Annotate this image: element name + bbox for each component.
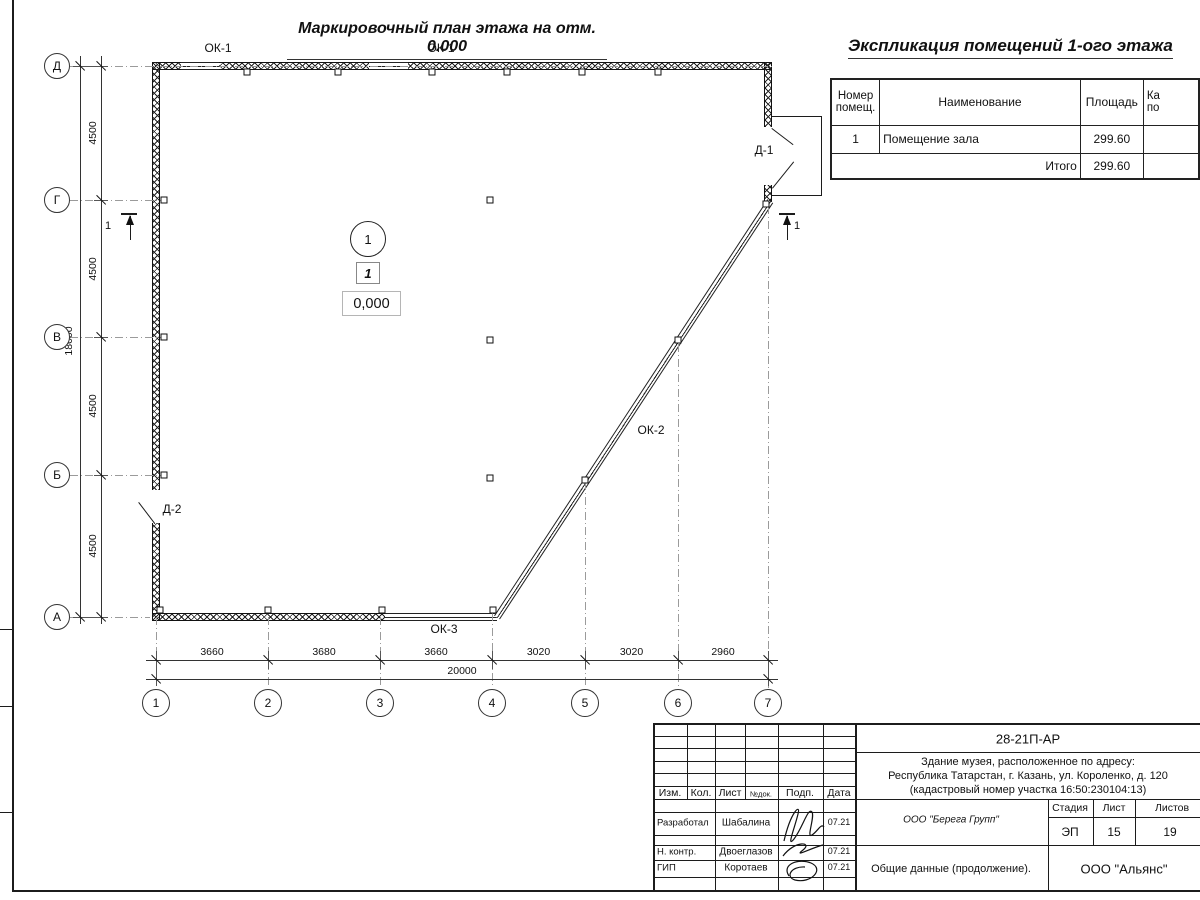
role-label: ГИП — [657, 863, 676, 874]
titleblock-line — [1048, 817, 1200, 818]
titleblock-line — [1093, 799, 1094, 845]
titleblock-line — [653, 799, 1200, 800]
titleblock-line — [1135, 799, 1136, 845]
sign-date: 07.21 — [828, 862, 851, 872]
titleblock-line — [653, 748, 855, 749]
titleblock-line — [653, 736, 855, 737]
col-izm: Изм. — [659, 787, 682, 799]
titleblock-border — [653, 723, 1200, 725]
sheet-value: 15 — [1107, 825, 1120, 839]
address-line: Республика Татарстан, г. Казань, ул. Кор… — [888, 770, 1168, 782]
titleblock-line — [855, 752, 1200, 753]
titleblock-line — [653, 786, 855, 787]
doc-title: Общие данные (продолжение). — [871, 863, 1031, 875]
col-kol: Кол. — [691, 787, 712, 799]
titleblock-border — [855, 723, 857, 892]
titleblock-line — [653, 761, 855, 762]
doc-number: 28-21П-АР — [996, 732, 1060, 747]
sign-date: 07.21 — [828, 846, 851, 856]
titleblock-line — [1048, 799, 1049, 892]
role-label: Разработал — [657, 818, 709, 829]
person-name: Шабалина — [722, 818, 770, 829]
col-podp: Подп. — [786, 787, 814, 799]
drawing-sheet: Маркировочный план этажа на отм. 0.000 Э… — [0, 0, 1200, 900]
signature-icon — [779, 838, 827, 888]
sign-date: 07.21 — [828, 817, 851, 827]
address-line: (кадастровый номер участка 16:50:230104:… — [910, 784, 1147, 796]
stage-value: ЭП — [1061, 825, 1078, 839]
title-block: Изм. Кол. Лист №док. Подп. Дата Разработ… — [0, 0, 1200, 900]
address-line: Здание музея, расположенное по адресу: — [921, 756, 1135, 768]
sheet-label: Лист — [1103, 802, 1126, 814]
col-ndok: №док. — [750, 790, 772, 799]
sheets-label: Листов — [1155, 802, 1189, 814]
col-list: Лист — [719, 787, 742, 799]
sheets-value: 19 — [1163, 825, 1176, 839]
company-name: ООО "Берега Групп" — [903, 815, 999, 826]
person-name: Двоеглазов — [719, 847, 772, 858]
titleblock-line — [653, 773, 855, 774]
person-name: Коротаев — [724, 863, 767, 874]
col-data: Дата — [827, 787, 850, 799]
stage-label: Стадия — [1052, 802, 1088, 814]
role-label: Н. контр. — [657, 847, 696, 858]
org-name: ООО "Альянс" — [1081, 862, 1168, 877]
